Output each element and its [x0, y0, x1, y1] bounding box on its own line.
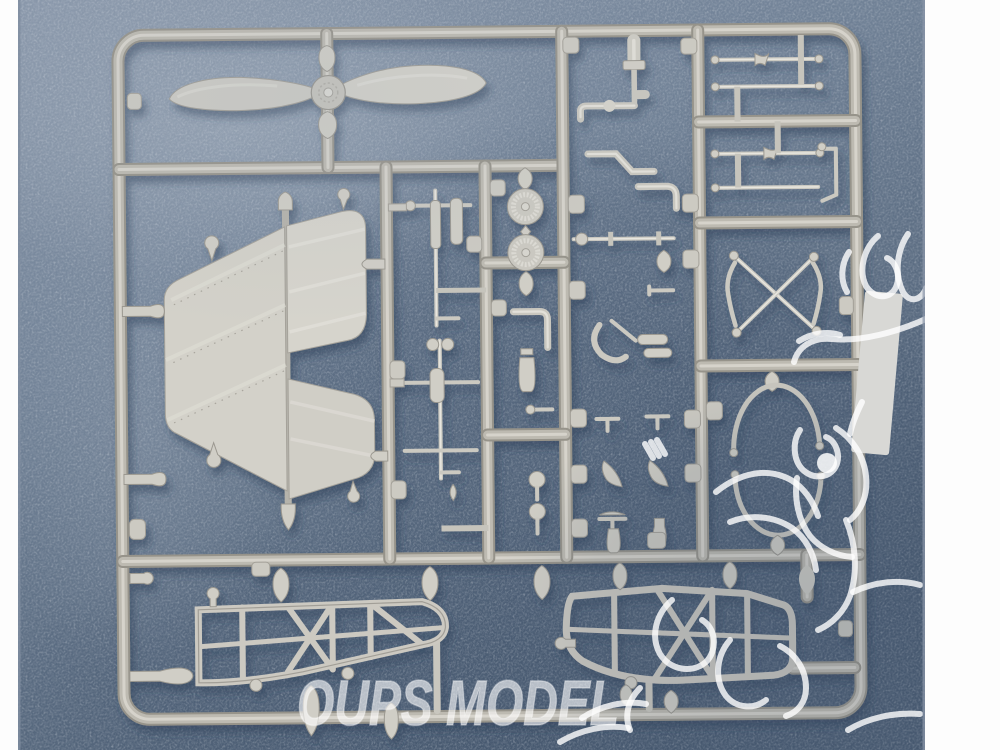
svg-text:OUPS MODEL: OUPS MODEL — [297, 667, 619, 739]
